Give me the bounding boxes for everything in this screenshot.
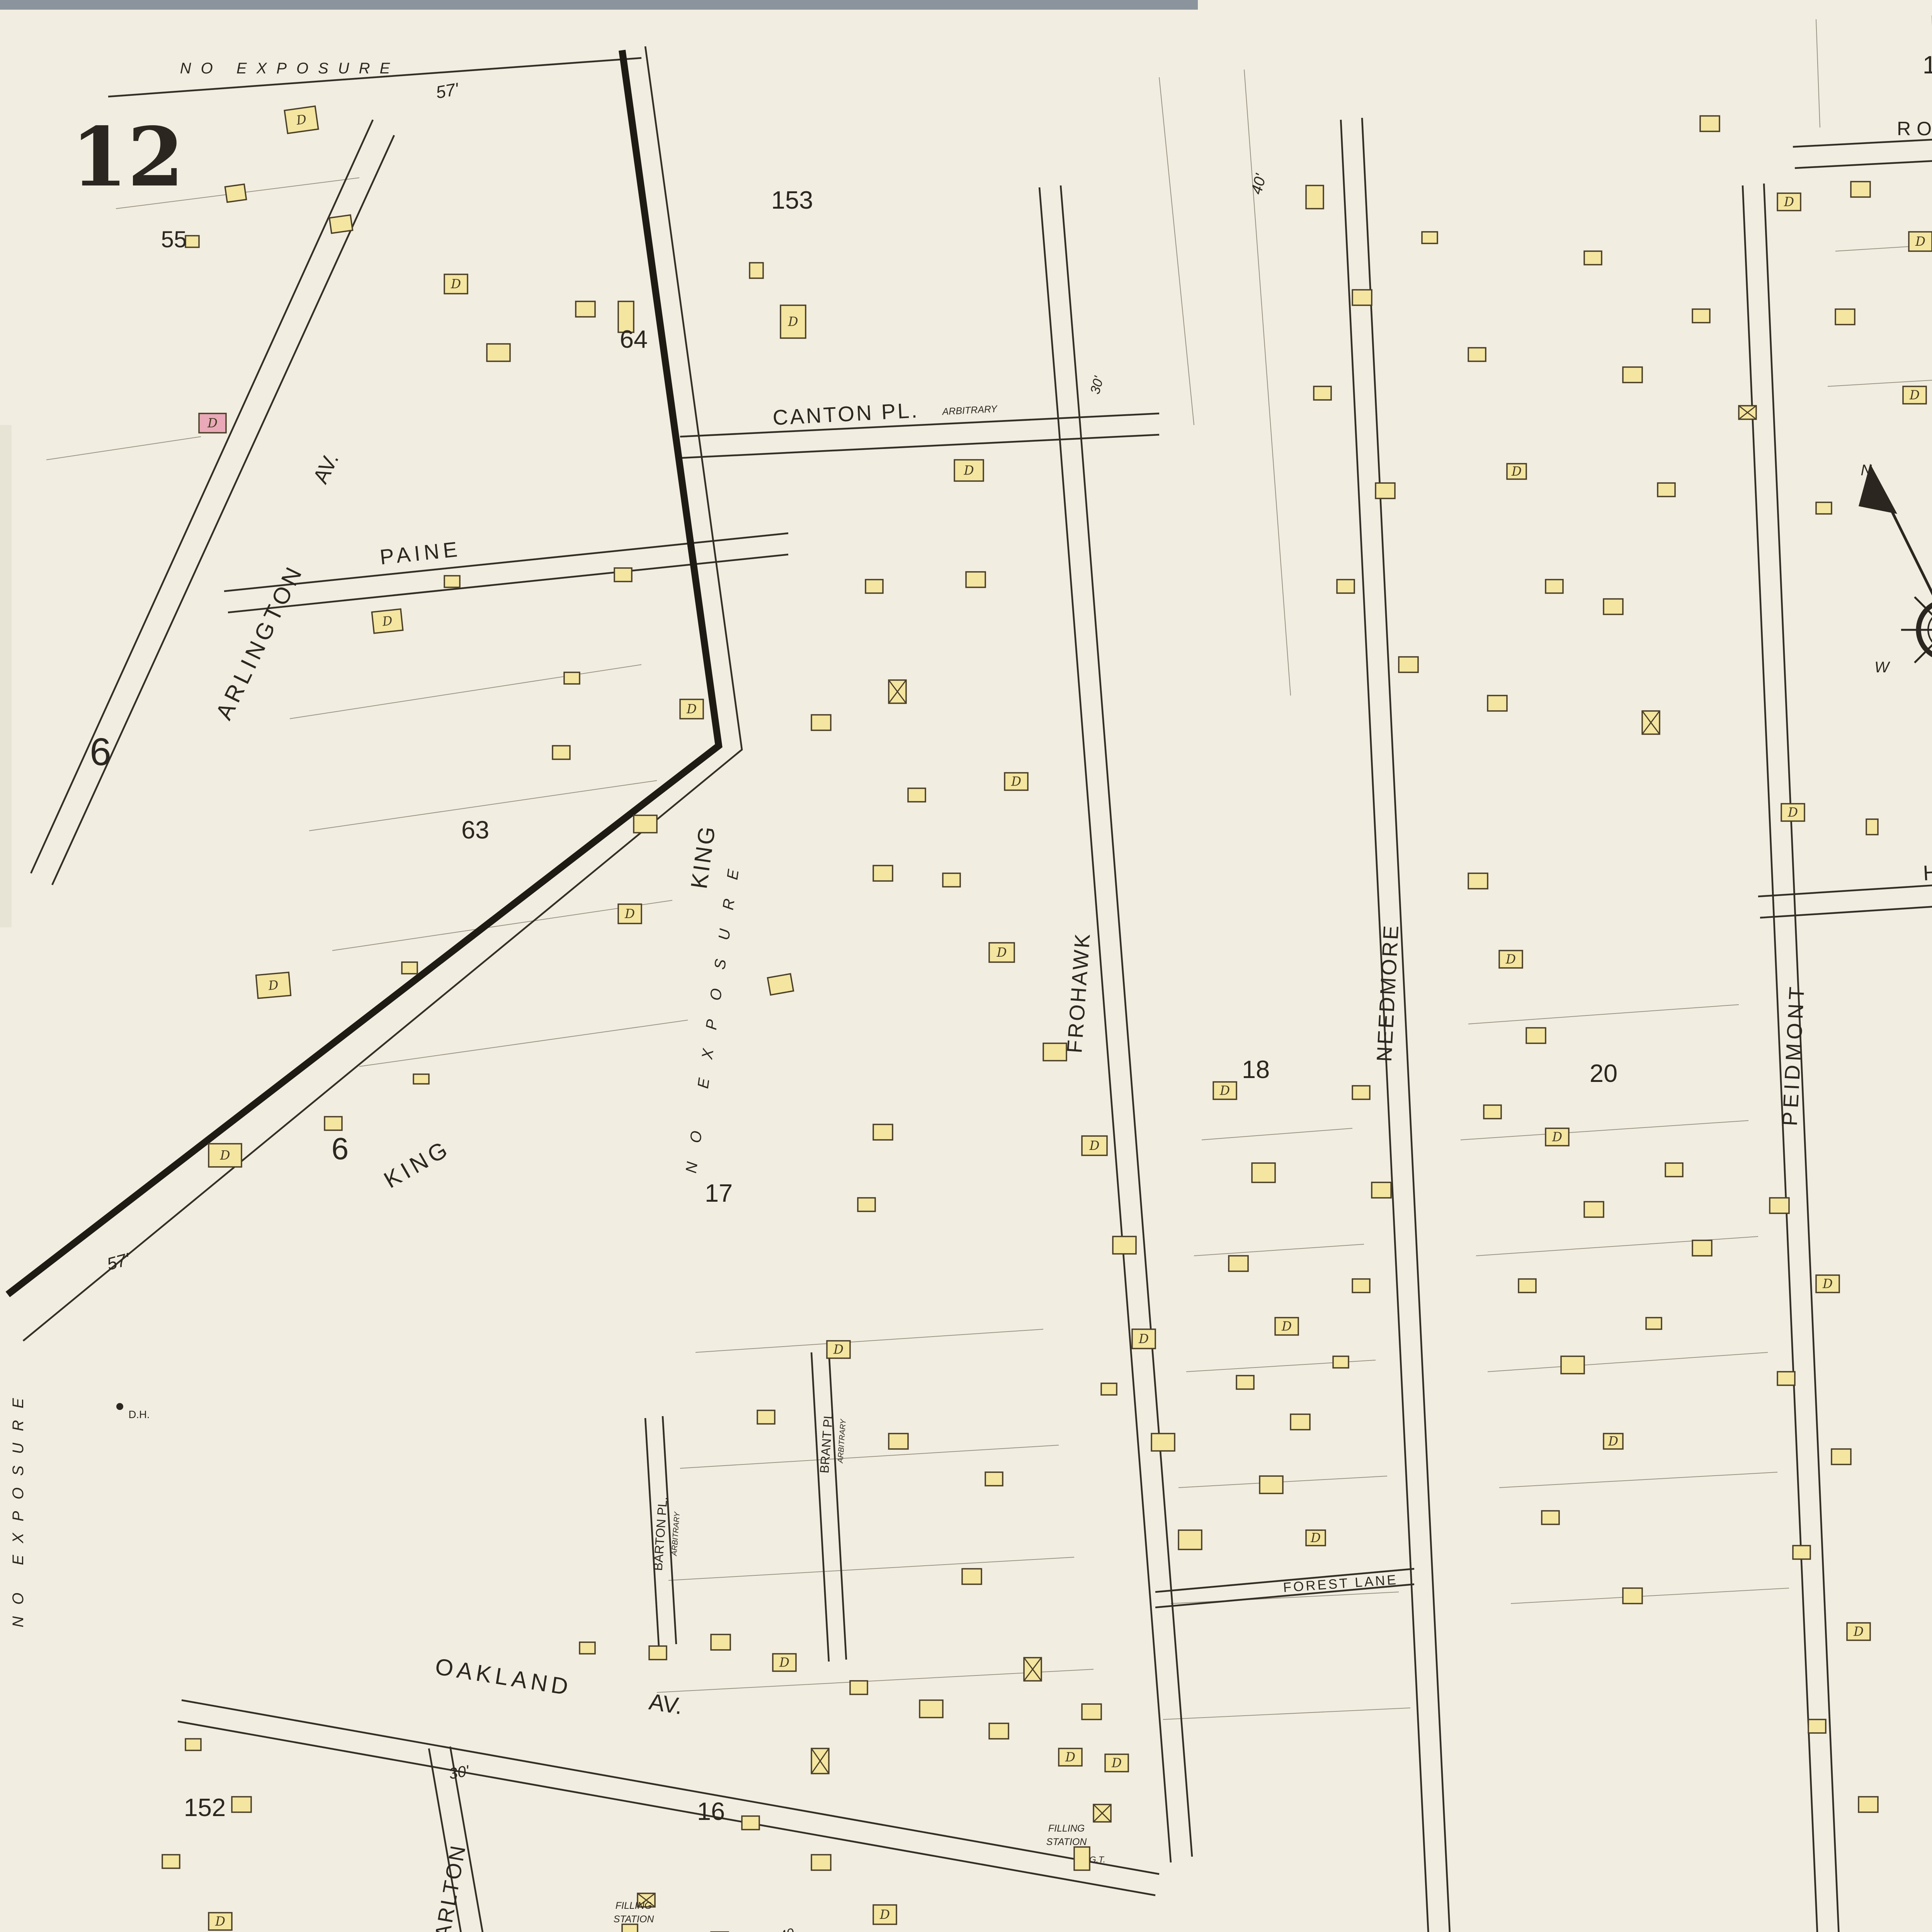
building-use-letter: D bbox=[1787, 805, 1798, 820]
building-footprint bbox=[889, 680, 906, 703]
building-footprint bbox=[1376, 483, 1395, 498]
building-footprint bbox=[866, 580, 883, 593]
building-footprint bbox=[614, 568, 632, 582]
building-footprint bbox=[1151, 1434, 1175, 1451]
building-footprint bbox=[413, 1074, 429, 1084]
building-footprint bbox=[1793, 1546, 1810, 1559]
dim-30-canton: 30' bbox=[1087, 374, 1107, 396]
no-exposure-left-edge: NO EXPOSURE bbox=[10, 1386, 27, 1627]
building-footprint bbox=[962, 1569, 981, 1584]
building-use-letter: D bbox=[1138, 1332, 1149, 1346]
building-footprint bbox=[1584, 1202, 1604, 1217]
street-brant-pl: BRANT PL. bbox=[817, 1408, 836, 1473]
block-number-153: 153 bbox=[771, 186, 813, 214]
building-use-letter: D bbox=[963, 463, 974, 478]
building-footprint bbox=[811, 1855, 831, 1870]
compass-n: N bbox=[1861, 462, 1872, 479]
building-footprint bbox=[889, 1434, 908, 1449]
building-footprint bbox=[1333, 1356, 1349, 1368]
building-footprint bbox=[1399, 657, 1418, 672]
building-use-letter: D bbox=[1089, 1138, 1099, 1153]
compass-rose: N bbox=[1859, 464, 1932, 815]
gas-tank-3: G.T. bbox=[1089, 1855, 1105, 1864]
building-footprint: D bbox=[827, 1341, 850, 1358]
building-footprint bbox=[858, 1198, 875, 1211]
building-footprint bbox=[1604, 599, 1623, 614]
street-hawkins: HAWKINS bbox=[1922, 855, 1932, 885]
street-king-lower: KING bbox=[379, 1135, 455, 1193]
building-footprint: D bbox=[444, 274, 468, 294]
building-footprint bbox=[1337, 580, 1354, 593]
building-footprint bbox=[1519, 1279, 1536, 1293]
no-exposure-king: NO EXPOSURE bbox=[683, 849, 745, 1174]
block-number-63: 63 bbox=[461, 816, 489, 844]
building-use-letter: D bbox=[1310, 1531, 1321, 1545]
building-footprint bbox=[649, 1646, 667, 1660]
filling-station-2-line2: STATION bbox=[1046, 1837, 1087, 1847]
building-footprint bbox=[1352, 1279, 1370, 1293]
building-footprint bbox=[1832, 1449, 1851, 1464]
building-use-letter: D bbox=[267, 978, 279, 993]
building-use-letter: D bbox=[381, 613, 393, 629]
building-use-letter: D bbox=[1011, 774, 1021, 789]
building-footprint bbox=[711, 1634, 730, 1650]
building-use-letter: D bbox=[1822, 1277, 1833, 1291]
building-use-letter: D bbox=[879, 1907, 890, 1922]
building-footprint bbox=[487, 344, 510, 361]
building-footprint bbox=[1179, 1530, 1202, 1549]
hydrant-dot bbox=[116, 1403, 123, 1410]
street-carlton: CARLTON bbox=[427, 1842, 470, 1932]
building-footprint bbox=[1546, 580, 1563, 593]
street-barton-pl: BARTON PL. bbox=[651, 1496, 670, 1571]
building-footprint bbox=[811, 1748, 829, 1774]
street-brant-arbitrary: ARBITRARY bbox=[836, 1418, 848, 1464]
building-use-letter: D bbox=[215, 1914, 225, 1929]
building-footprint: D bbox=[680, 699, 703, 719]
dim-57-top: 57' bbox=[434, 79, 461, 102]
building-footprint: D bbox=[1777, 193, 1801, 211]
building-footprint bbox=[908, 788, 925, 802]
map-labels: 12121266121111(4446)55153646317182022154… bbox=[10, 51, 1932, 1932]
building-use-letter: D bbox=[1552, 1130, 1562, 1145]
block-number-16: 16 bbox=[697, 1797, 725, 1825]
building-footprint bbox=[768, 974, 794, 995]
building-footprint: D bbox=[1847, 1623, 1870, 1640]
building-footprint bbox=[1584, 251, 1602, 265]
street-canton-pl: CANTON PL. bbox=[772, 398, 920, 430]
building-footprint bbox=[985, 1472, 1003, 1486]
building-footprint bbox=[622, 1924, 638, 1932]
building-footprint bbox=[1468, 873, 1488, 889]
building-footprint: D bbox=[1306, 1530, 1325, 1546]
building-footprint bbox=[232, 1797, 251, 1812]
building-use-letter: D bbox=[1784, 195, 1794, 209]
building-use-letter: D bbox=[833, 1342, 844, 1357]
compass-w: W bbox=[1874, 659, 1890, 676]
building-use-letter: D bbox=[295, 112, 307, 128]
building-footprint bbox=[1561, 1356, 1584, 1374]
building-footprint bbox=[1623, 367, 1642, 383]
building-use-letter: D bbox=[1065, 1750, 1075, 1765]
street-peidmont: PEIDMONT bbox=[1777, 982, 1809, 1126]
building-footprint: D bbox=[1816, 1275, 1839, 1293]
building-footprint bbox=[1260, 1476, 1283, 1493]
street-oakland: OAKLAND bbox=[434, 1653, 574, 1701]
street-arlington-av-suffix: AV. bbox=[308, 449, 344, 487]
building-use-letter: D bbox=[1281, 1319, 1292, 1334]
building-use-letter: D bbox=[1853, 1624, 1864, 1639]
building-footprint: D bbox=[1275, 1318, 1298, 1335]
street-canton-arbitrary: ARBITRARY bbox=[941, 403, 998, 417]
building-footprint bbox=[1700, 116, 1719, 131]
building-footprint bbox=[1352, 1086, 1370, 1099]
building-footprint bbox=[1229, 1256, 1248, 1271]
building-footprint bbox=[1770, 1198, 1789, 1213]
building-footprint: D bbox=[1499, 951, 1522, 968]
building-footprint: D bbox=[1903, 386, 1926, 404]
building-footprint: D bbox=[1059, 1748, 1082, 1766]
building-footprint bbox=[564, 672, 580, 684]
building-footprint: D bbox=[1105, 1754, 1128, 1772]
building-footprint: D bbox=[1082, 1136, 1107, 1155]
building-footprint: D bbox=[372, 609, 403, 633]
building-footprint: D bbox=[1507, 464, 1526, 479]
street-lines bbox=[4, 46, 1932, 1932]
building-footprint bbox=[1024, 1658, 1041, 1681]
building-footprint bbox=[402, 962, 417, 974]
building-footprint: D bbox=[284, 106, 318, 134]
building-footprint bbox=[634, 815, 657, 833]
building-footprint: D bbox=[209, 1913, 232, 1930]
building-footprint bbox=[1484, 1105, 1501, 1119]
building-footprint bbox=[1488, 696, 1507, 711]
block-number-55: 55 bbox=[161, 226, 187, 252]
page-number-top-left: 12 bbox=[71, 109, 184, 205]
dim-57-king: 57' bbox=[105, 1249, 132, 1274]
building-footprint bbox=[1101, 1383, 1117, 1395]
street-frohawk: FROHAWK bbox=[1062, 931, 1095, 1054]
building-footprint bbox=[1422, 232, 1437, 243]
building-footprint: D bbox=[1132, 1329, 1155, 1349]
building-footprint: D bbox=[1213, 1082, 1236, 1099]
building-footprint bbox=[1642, 711, 1660, 734]
filling-station-1-line1: FILLING bbox=[616, 1900, 652, 1911]
building-footprint bbox=[444, 576, 460, 587]
building-footprint: D bbox=[1604, 1434, 1623, 1449]
building-footprint bbox=[1314, 386, 1331, 400]
building-footprint bbox=[1094, 1804, 1111, 1822]
building-footprint bbox=[1777, 1372, 1795, 1385]
building-footprint: D bbox=[256, 972, 291, 998]
building-footprint: D bbox=[1005, 773, 1028, 790]
map-sheet: N JAN.1930 GREER S.C. (27) SCALE 100 FT.… bbox=[0, 0, 1932, 1932]
building-use-letter: D bbox=[996, 945, 1007, 960]
building-footprint bbox=[850, 1681, 867, 1694]
building-footprint bbox=[989, 1723, 1009, 1739]
sanborn-map-svg: N JAN.1930 GREER S.C. (27) SCALE 100 FT.… bbox=[0, 0, 1932, 1932]
building-footprint bbox=[966, 572, 985, 587]
house-number-149: 149 bbox=[770, 1925, 796, 1932]
building-footprint bbox=[185, 1739, 201, 1750]
block-number-17: 17 bbox=[705, 1179, 733, 1207]
building-use-letter: D bbox=[1915, 234, 1925, 249]
no-exposure-top: NO EXPOSURE bbox=[180, 60, 400, 77]
building-use-letter: D bbox=[1608, 1434, 1618, 1449]
building-footprint bbox=[1074, 1847, 1090, 1870]
building-footprint bbox=[811, 715, 831, 730]
building-use-letter: D bbox=[1111, 1756, 1122, 1770]
building-footprint bbox=[1816, 502, 1832, 514]
building-footprint: D bbox=[209, 1144, 241, 1167]
building-use-letter: D bbox=[624, 906, 635, 921]
building-footprint bbox=[1306, 185, 1323, 209]
building-use-letter: D bbox=[1511, 464, 1522, 479]
building-footprint bbox=[1623, 1588, 1642, 1604]
block-number-64: 64 bbox=[620, 325, 648, 353]
building-footprint bbox=[873, 866, 893, 881]
block-number-18: 18 bbox=[1242, 1055, 1270, 1083]
scan-artifacts bbox=[0, 0, 1932, 1932]
building-footprint bbox=[1542, 1511, 1559, 1524]
building-footprint bbox=[742, 1816, 759, 1830]
building-footprint bbox=[1665, 1163, 1683, 1177]
dim-40-top: 40' bbox=[1248, 172, 1269, 196]
block-number-6-king: 6 bbox=[332, 1131, 349, 1166]
building-use-letter: D bbox=[219, 1148, 230, 1163]
building-footprint bbox=[1468, 348, 1486, 361]
building-footprint bbox=[1113, 1236, 1136, 1254]
building-footprint bbox=[580, 1642, 595, 1654]
building-footprint: D bbox=[199, 413, 226, 433]
lot-lines bbox=[46, 12, 1932, 1932]
block-number-6-left: 6 bbox=[90, 730, 111, 774]
building-footprint bbox=[873, 1124, 893, 1140]
building-footprint bbox=[225, 184, 246, 202]
building-use-letter: D bbox=[779, 1655, 789, 1670]
building-footprint bbox=[750, 263, 763, 278]
building-footprint bbox=[185, 236, 199, 247]
building-footprint: D bbox=[954, 460, 983, 481]
building-footprint bbox=[1835, 309, 1855, 325]
street-oakland-av-suffix: AV. bbox=[647, 1689, 684, 1719]
building-footprint: D bbox=[1546, 1128, 1569, 1146]
building-use-letter: D bbox=[686, 702, 697, 716]
street-king-upper: KING bbox=[686, 823, 721, 890]
building-footprint bbox=[943, 873, 960, 887]
building-footprint bbox=[1808, 1719, 1826, 1733]
street-needmore: NEEDMORE bbox=[1372, 923, 1403, 1063]
building-footprint: D bbox=[781, 305, 806, 338]
building-footprint bbox=[1352, 290, 1372, 305]
building-use-letter: D bbox=[451, 277, 461, 291]
block-number-20: 20 bbox=[1590, 1059, 1617, 1087]
street-rosa: ROSA bbox=[1897, 118, 1932, 139]
building-use-letter: D bbox=[207, 416, 218, 430]
street-paine: PAINE bbox=[379, 537, 462, 569]
building-footprint bbox=[162, 1855, 180, 1868]
building-footprint bbox=[1372, 1182, 1391, 1198]
building-footprint bbox=[1658, 483, 1675, 497]
building-footprint: D bbox=[1781, 804, 1804, 821]
dim-30-carlton: 30' bbox=[447, 1762, 471, 1783]
building-footprint bbox=[1739, 406, 1756, 419]
building-footprint: D bbox=[873, 1905, 896, 1924]
street-barton-arbitrary: ARBITRARY bbox=[670, 1511, 682, 1556]
building-footprint bbox=[1859, 1797, 1878, 1812]
building-footprint bbox=[1692, 309, 1710, 323]
building-footprint bbox=[553, 746, 570, 759]
building-footprint bbox=[1252, 1163, 1275, 1182]
block-number-155: 155 bbox=[1923, 51, 1932, 79]
building-footprint bbox=[1291, 1414, 1310, 1430]
building-footprint bbox=[325, 1117, 342, 1130]
street-arlington: ARLINGTON bbox=[211, 560, 308, 724]
dh-king-label: D.H. bbox=[129, 1408, 150, 1420]
building-footprint bbox=[1236, 1376, 1254, 1389]
building-footprint bbox=[1526, 1028, 1546, 1043]
building-footprint: D bbox=[989, 943, 1014, 962]
building-footprint bbox=[1646, 1318, 1662, 1329]
building-footprint bbox=[757, 1410, 775, 1424]
building-use-letter: D bbox=[1219, 1083, 1230, 1098]
building-footprint bbox=[1082, 1704, 1101, 1719]
filling-station-2-line1: FILLING bbox=[1048, 1823, 1085, 1834]
building-footprint: D bbox=[773, 1654, 796, 1671]
filling-station-1-line2: STATION bbox=[614, 1914, 655, 1925]
building-footprint bbox=[1866, 819, 1878, 835]
building-footprint bbox=[329, 215, 352, 233]
building-use-letter: D bbox=[1909, 388, 1920, 403]
building-use-letter: D bbox=[1505, 952, 1516, 967]
building-use-letter: D bbox=[787, 315, 798, 329]
building-footprint: D bbox=[1909, 232, 1932, 251]
building-footprint bbox=[576, 301, 595, 317]
building-footprint: D bbox=[618, 904, 641, 923]
building-footprint bbox=[1851, 182, 1870, 197]
block-number-152: 152 bbox=[184, 1793, 226, 1821]
building-footprint bbox=[920, 1700, 943, 1718]
building-footprint bbox=[1692, 1240, 1712, 1256]
